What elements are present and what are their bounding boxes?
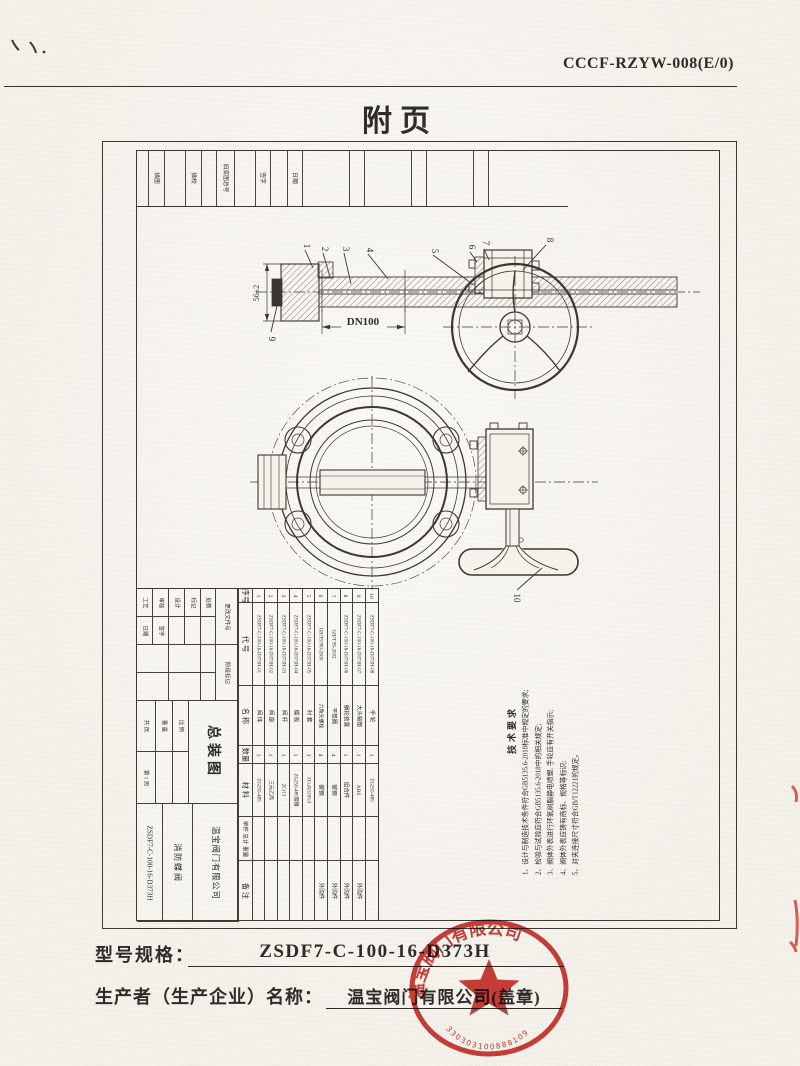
strip-label-date: 日期 <box>288 150 303 206</box>
table-row: 9 ZSDF7-C-100-16-D373H-07 大头轴垫 1 ABS 外购件 <box>353 589 366 920</box>
table-row: 6 GB/T5780-2000 六角头螺栓 4 碳钢 外购件 <box>315 589 328 920</box>
technical-notes: 技术要求 1、设计与制造技术条件符合GB5135.6-2018标准中规定的要求;… <box>505 585 583 875</box>
title-block-cell <box>185 617 201 645</box>
header-name: 名 称 <box>239 686 252 746</box>
header-no: 序号 <box>239 589 252 603</box>
producer-label: 生产者（生产企业）名称： <box>95 983 323 1009</box>
title-block-cell <box>169 673 201 701</box>
table-row: 3 ZSDF7-C-100-16-D373H-03 阀 杆 1 2Cr13 <box>278 589 291 920</box>
field-mark: 标记 <box>185 589 201 617</box>
document-code: CCCF-RZYW-008(E/0) <box>0 55 734 73</box>
header-code: 代 号 <box>239 603 252 686</box>
producer-underline <box>326 1008 562 1009</box>
strip-cell <box>412 150 427 206</box>
title-block-cell <box>201 673 216 701</box>
table-row: 5 ZSDF7-C-100-16-D373H-05 衬 套 3 ZCuAl10F… <box>303 589 316 920</box>
model-spec-label: 型号规格： <box>95 941 195 967</box>
technical-notes-heading: 技术要求 <box>505 585 519 875</box>
table-row: 7 GB/T 95-2002 平垫圈 4 碳钢 外购件 <box>328 589 341 920</box>
header-weight: 单件 总计 重量 <box>239 817 252 861</box>
note-line: 1、设计与制造技术条件符合GB5135.6-2018标准中规定的要求; <box>520 643 530 875</box>
header-rule <box>4 86 737 87</box>
field-sign: 签字 <box>153 617 169 645</box>
strip-label-old-master-no: 旧底图总号 <box>217 150 235 206</box>
model-spec-underline <box>188 966 564 967</box>
header-remark: 备 注 <box>239 861 252 921</box>
title-block-cell <box>137 645 169 673</box>
title-block-cell <box>156 752 173 804</box>
note-line: 3、阀体外表进行环氧树脂静电喷塑, 手轮应有开关指示; <box>545 643 555 875</box>
strip-cell <box>136 150 149 206</box>
title-block-cell <box>137 673 169 701</box>
strip-label-tracing: 描图 <box>149 150 165 206</box>
producer-value: 温宝阀门有限公司(盖章) <box>328 983 560 1008</box>
title-block-cell <box>169 645 201 673</box>
seal-serial-number: 330303100888109 <box>444 1024 531 1051</box>
strip-cell <box>350 150 365 206</box>
strip-cell <box>235 150 256 206</box>
parts-table-header-column: 序号 代 号 名 称 数量 材 料 单件 总计 重量 备 注 <box>239 589 253 920</box>
strip-label-signature: 签字 <box>256 150 271 206</box>
title-block-cell <box>201 645 216 673</box>
field-page-no: 第 1 页 <box>137 752 156 804</box>
table-row: 4 ZSDF7-C-100-16-D373H-04 蝶 板 1 ZG250-48… <box>290 589 303 920</box>
strip-label-trace-check: 描校 <box>186 150 202 206</box>
field-sheets: 共 页 <box>137 701 156 752</box>
company-name-cell: 温宝阀门有限公司 <box>193 804 239 922</box>
field-count: 处数 <box>201 589 216 617</box>
field-check: 审核 <box>153 589 169 617</box>
strip-cell <box>303 150 350 206</box>
scan-artifact-marks <box>12 40 45 53</box>
title-block: 工艺 审核 设计 标记 处数 更改文件号 日期 签字 阶段标记 共 页 第 1 … <box>136 588 238 921</box>
field-stage-mark: 阶段标记 <box>216 645 239 701</box>
table-row: 8 ZSDF7-C-100-16-D373H-06 蜗轮装置 1 组合件 外购件 <box>341 589 354 920</box>
drawing-name-cell: 总装图 <box>189 701 239 804</box>
parts-list-table: 序号 代 号 名 称 数量 材 料 单件 总计 重量 备 注 1 ZSDF7-C… <box>238 588 379 921</box>
field-scale: 比 例 <box>173 701 189 752</box>
field-process: 工艺 <box>137 589 153 617</box>
field-date: 日期 <box>137 617 153 645</box>
product-name-cell: 消防蝶阀 <box>163 804 193 922</box>
strip-cell <box>165 150 186 206</box>
field-weight: 重 量 <box>156 701 173 752</box>
strip-cell <box>474 150 489 206</box>
note-line: 4、阀体外表应铸有商标、规格等标识; <box>558 643 568 875</box>
field-change-doc: 更改文件号 <box>216 589 239 645</box>
field-design: 设计 <box>169 589 185 617</box>
note-line: 5、对夹连接尺寸符合GB/T12221的规定。 <box>570 643 580 875</box>
strip-cell <box>202 150 217 206</box>
title-block-cell <box>169 617 185 645</box>
red-edge-artifact <box>790 786 797 952</box>
strip-cell <box>365 150 412 206</box>
header-material: 材 料 <box>239 764 252 817</box>
table-row: 1 ZSDF7-C-100-16-D373H-01 阀 体 1 ZG250-48… <box>253 589 266 920</box>
title-block-cell <box>201 617 216 645</box>
model-spec-value: ZSDF7-C-100-16-D373H <box>190 941 560 963</box>
strip-cell <box>427 150 474 206</box>
page-title: 附页 <box>0 96 800 140</box>
title-block-cell <box>173 752 189 804</box>
drawing-code-cell: ZSDF7-C-100-16-D373H <box>137 804 163 922</box>
scanned-document-page: CCCF-RZYW-008(E/0) 附页 描图 描校 旧底图总号 签字 日期 <box>0 0 800 1066</box>
table-row: 2 ZSDF7-C-100-16-D373H-02 阀 座 1 三元乙丙 <box>265 589 278 920</box>
svg-text:330303100888109: 330303100888109 <box>444 1024 531 1051</box>
note-line: 2、检验与试验应符合GB5135.6-2018中的相关规定; <box>533 643 543 875</box>
header-qty: 数量 <box>239 746 252 764</box>
table-row: 10 ZSDF7-C-100-16-D373H-08 手 轮 1 ZG250-4… <box>366 589 379 920</box>
strip-cell <box>271 150 288 206</box>
border-strip: 描图 描校 旧底图总号 签字 日期 <box>136 150 568 207</box>
strip-cell <box>489 150 568 206</box>
